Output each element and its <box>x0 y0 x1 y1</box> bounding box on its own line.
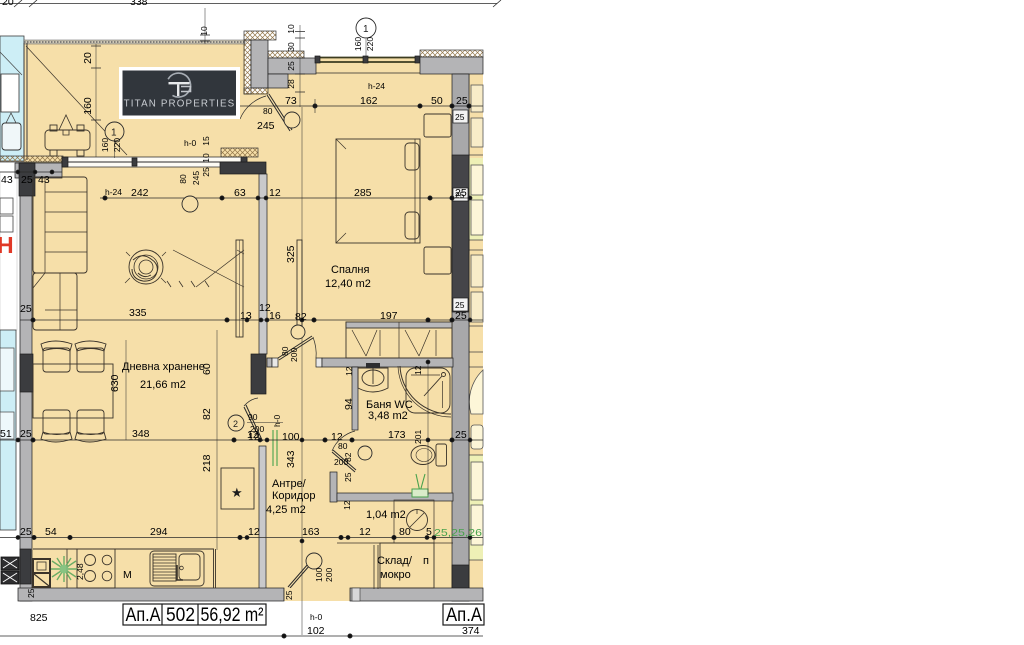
svg-text:163: 163 <box>302 526 320 538</box>
svg-text:80: 80 <box>263 106 273 116</box>
svg-text:Ап.А: Ап.А <box>126 605 161 626</box>
svg-text:80: 80 <box>178 174 188 184</box>
svg-text:825: 825 <box>30 612 48 624</box>
svg-text:245: 245 <box>257 120 275 132</box>
svg-text:285: 285 <box>354 187 372 199</box>
svg-text:12: 12 <box>413 365 423 375</box>
svg-text:10: 10 <box>201 153 211 163</box>
svg-text:25: 25 <box>21 174 33 186</box>
svg-text:1,04 m2: 1,04 m2 <box>366 509 406 521</box>
svg-text:218: 218 <box>201 454 213 472</box>
svg-text:20: 20 <box>2 0 14 8</box>
svg-text:10: 10 <box>199 26 209 36</box>
svg-text:335: 335 <box>129 307 147 319</box>
svg-text:2: 2 <box>233 419 238 429</box>
svg-text:4,25 m2: 4,25 m2 <box>266 504 306 516</box>
svg-text:25: 25 <box>456 95 468 107</box>
svg-text:10: 10 <box>286 24 296 34</box>
svg-text:5: 5 <box>426 526 432 538</box>
svg-text:Ап.А: Ап.А <box>446 605 482 626</box>
svg-text:200: 200 <box>324 568 334 582</box>
svg-text:100: 100 <box>282 431 300 443</box>
svg-text:1: 1 <box>363 24 369 35</box>
svg-text:100: 100 <box>314 568 324 582</box>
svg-text:82: 82 <box>343 452 353 462</box>
svg-text:82: 82 <box>295 311 307 323</box>
svg-text:12: 12 <box>269 187 281 199</box>
svg-text:160: 160 <box>353 37 363 51</box>
svg-text:h-24: h-24 <box>105 187 122 197</box>
svg-text:201: 201 <box>413 430 423 444</box>
svg-text:245: 245 <box>191 171 201 185</box>
svg-text:50: 50 <box>431 95 443 107</box>
svg-text:348: 348 <box>132 428 150 440</box>
svg-text:338: 338 <box>130 0 148 8</box>
svg-text:294: 294 <box>150 526 168 538</box>
svg-text:82: 82 <box>201 408 213 420</box>
svg-text:173: 173 <box>388 429 406 441</box>
svg-text:63: 63 <box>234 187 246 199</box>
svg-text:16: 16 <box>269 310 281 322</box>
svg-text:630: 630 <box>109 374 121 392</box>
svg-text:220: 220 <box>365 37 375 51</box>
svg-text:60: 60 <box>201 363 213 375</box>
svg-text:28: 28 <box>286 79 296 89</box>
svg-text:12: 12 <box>331 431 343 443</box>
svg-text:25: 25 <box>286 61 296 71</box>
svg-text:242: 242 <box>131 187 149 199</box>
svg-text:102: 102 <box>307 625 325 637</box>
svg-text:Коридор: Коридор <box>272 490 315 502</box>
svg-text:Склад/: Склад/ <box>377 555 413 567</box>
svg-text:Спалня: Спалня <box>331 264 370 276</box>
svg-text:TITAN PROPERTIES: TITAN PROPERTIES <box>124 99 236 110</box>
svg-text:Дневна хранене: Дневна хранене <box>122 361 205 373</box>
svg-text:2,48: 2,48 <box>75 563 85 580</box>
svg-text:56,92 m²: 56,92 m² <box>201 605 264 626</box>
svg-text:25: 25 <box>455 310 467 322</box>
svg-text:25: 25 <box>20 428 32 440</box>
svg-text:20: 20 <box>82 52 94 64</box>
svg-text:25: 25 <box>26 588 36 598</box>
svg-text:25: 25 <box>455 190 465 200</box>
svg-text:160: 160 <box>100 138 110 152</box>
svg-text:Н: Н <box>0 232 14 258</box>
svg-text:25: 25 <box>20 526 32 538</box>
svg-text:25: 25 <box>343 472 353 482</box>
svg-text:25: 25 <box>284 590 294 600</box>
svg-text:h-0: h-0 <box>310 612 323 622</box>
svg-text:160: 160 <box>82 97 94 115</box>
svg-text:15: 15 <box>201 136 211 146</box>
svg-text:13: 13 <box>240 310 252 322</box>
svg-text:12: 12 <box>248 526 260 538</box>
svg-text:30: 30 <box>286 42 296 52</box>
svg-text:73: 73 <box>285 95 297 107</box>
svg-text:12: 12 <box>359 526 371 538</box>
svg-text:197: 197 <box>380 310 398 322</box>
svg-text:25: 25 <box>20 303 32 315</box>
svg-text:343: 343 <box>285 450 297 468</box>
svg-text:25: 25 <box>201 167 211 177</box>
svg-text:п: п <box>423 555 429 567</box>
svg-text:90: 90 <box>248 412 258 422</box>
svg-text:3,48 m2: 3,48 m2 <box>368 410 408 422</box>
svg-text:1: 1 <box>111 128 117 139</box>
svg-text:h-0: h-0 <box>272 414 282 427</box>
svg-text:25: 25 <box>455 429 467 441</box>
svg-text:220: 220 <box>112 138 122 152</box>
svg-text:h-24: h-24 <box>368 81 385 91</box>
svg-text:★: ★ <box>231 485 243 500</box>
svg-text:12: 12 <box>248 431 260 443</box>
svg-text:12,40 m2: 12,40 m2 <box>325 278 371 290</box>
svg-text:80: 80 <box>399 526 411 538</box>
svg-text:25: 25 <box>455 300 465 310</box>
svg-text:502: 502 <box>166 605 195 626</box>
svg-text:12: 12 <box>344 366 354 376</box>
svg-text:43: 43 <box>1 174 13 186</box>
svg-text:51: 51 <box>0 428 12 440</box>
svg-text:200: 200 <box>289 348 299 362</box>
svg-text:43: 43 <box>38 174 50 186</box>
svg-text:мокро: мокро <box>380 569 411 581</box>
svg-text:374: 374 <box>462 625 480 637</box>
svg-text:Антре/: Антре/ <box>272 478 307 490</box>
svg-text:12: 12 <box>342 500 352 510</box>
svg-text:54: 54 <box>45 526 57 538</box>
svg-text:21,66 m2: 21,66 m2 <box>140 379 186 391</box>
svg-text:h-0: h-0 <box>184 138 197 148</box>
svg-text:162: 162 <box>360 95 378 107</box>
svg-text:М: М <box>123 569 132 581</box>
svg-text:25,25,26: 25,25,26 <box>434 527 482 539</box>
svg-text:94: 94 <box>343 398 355 410</box>
svg-text:325: 325 <box>285 245 297 263</box>
svg-text:25: 25 <box>455 112 465 122</box>
